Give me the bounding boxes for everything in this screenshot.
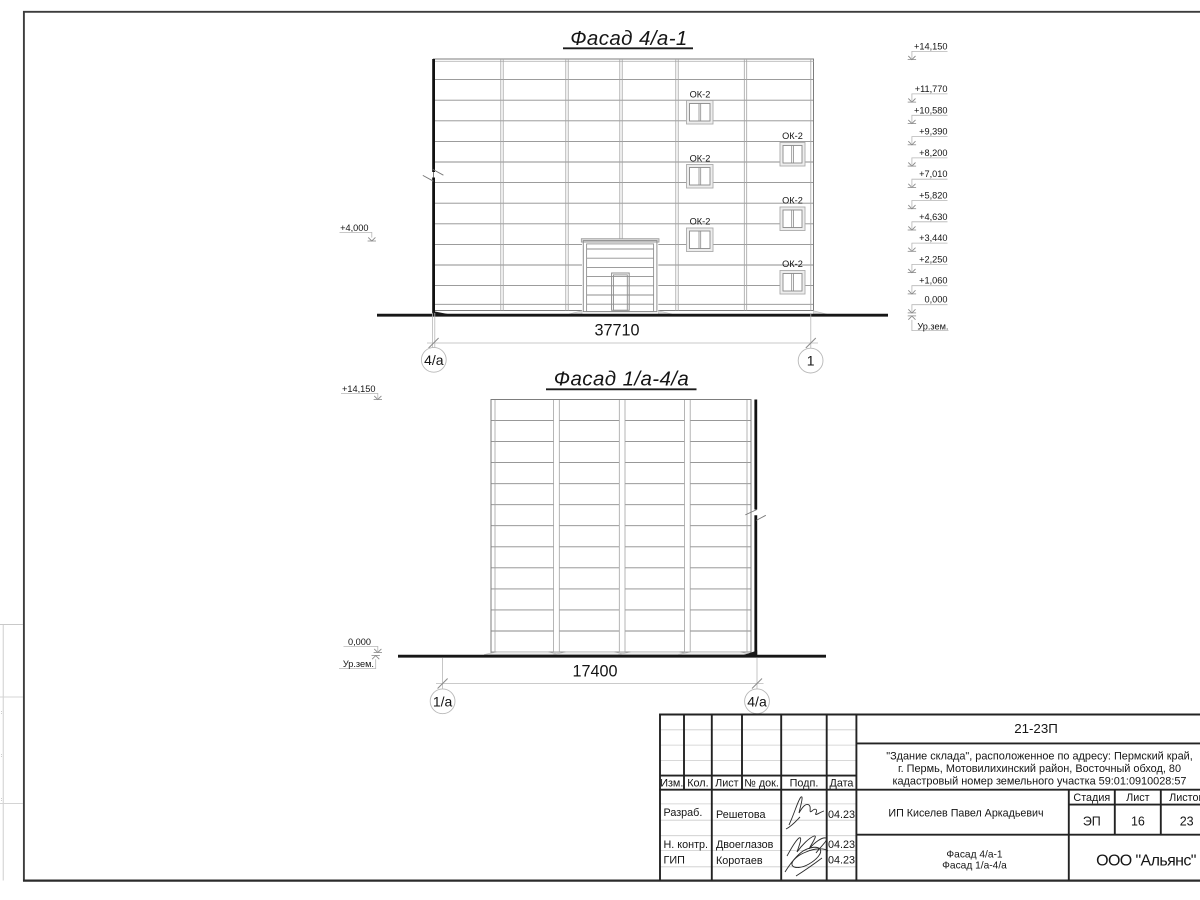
svg-text:Подп.: Подп. — [790, 778, 819, 790]
svg-text:+5,820: +5,820 — [919, 191, 947, 201]
svg-text:+10,580: +10,580 — [914, 105, 947, 115]
svg-text:ОК-2: ОК-2 — [690, 154, 711, 164]
svg-text:Разраб.: Разраб. — [664, 807, 703, 819]
svg-text:Фасад 1/а-4/а: Фасад 1/а-4/а — [554, 368, 689, 391]
svg-text:37710: 37710 — [594, 322, 639, 340]
svg-text:ГИП: ГИП — [664, 855, 685, 867]
svg-text:16: 16 — [1131, 815, 1145, 829]
svg-text:Решетова: Решетова — [716, 809, 766, 821]
svg-text:Изм.: Изм. — [660, 778, 683, 790]
svg-text::: : — [1, 710, 2, 715]
svg-text:4/а: 4/а — [747, 693, 767, 709]
svg-text:+4,630: +4,630 — [919, 212, 947, 222]
svg-text:+4,000: +4,000 — [340, 223, 368, 233]
svg-text:Н. контр.: Н. контр. — [664, 839, 709, 851]
svg-text:Кол.: Кол. — [687, 778, 708, 790]
svg-text:23: 23 — [1180, 815, 1194, 829]
svg-text:+1,060: +1,060 — [919, 276, 947, 286]
svg-text:+7,010: +7,010 — [919, 169, 947, 179]
svg-text:4/а: 4/а — [424, 352, 444, 368]
svg-text:ОК-2: ОК-2 — [690, 217, 711, 227]
svg-text:Фасад 1/а-4/а: Фасад 1/а-4/а — [942, 860, 1007, 871]
svg-text:17400: 17400 — [572, 663, 617, 681]
svg-text:0,000: 0,000 — [925, 295, 948, 305]
svg-text:Ур.зем.: Ур.зем. — [343, 659, 374, 669]
svg-text:21-23П: 21-23П — [1014, 721, 1058, 736]
svg-text:Ур.зем.: Ур.зем. — [917, 321, 948, 331]
svg-text:04.23: 04.23 — [828, 809, 855, 821]
svg-text:+9,390: +9,390 — [919, 127, 947, 137]
svg-text:ЭП: ЭП — [1083, 815, 1101, 829]
svg-text:ОК-2: ОК-2 — [690, 90, 711, 100]
svg-text:1: 1 — [807, 353, 815, 369]
svg-text:Стадия: Стадия — [1073, 792, 1110, 804]
svg-text:+2,250: +2,250 — [919, 254, 947, 264]
svg-text:+14,150: +14,150 — [914, 41, 947, 51]
svg-text:ОК-2: ОК-2 — [782, 131, 803, 141]
svg-text:Дата: Дата — [830, 778, 854, 790]
svg-text:ОК-2: ОК-2 — [782, 196, 803, 206]
svg-text:Двоеглазов: Двоеглазов — [716, 839, 774, 851]
svg-text:Фасад 4/а-1: Фасад 4/а-1 — [570, 27, 688, 50]
svg-text::: : — [1, 753, 2, 758]
svg-text:Лист: Лист — [1126, 792, 1150, 804]
svg-text:г. Пермь, Мотовилихинский райо: г. Пермь, Мотовилихинский район, Восточн… — [898, 763, 1181, 775]
svg-text:+3,440: +3,440 — [919, 233, 947, 243]
svg-text:"Здание склада", расположенное: "Здание склада", расположенное по адресу… — [886, 751, 1193, 763]
svg-text:+14,150: +14,150 — [342, 384, 375, 394]
svg-text:Листов: Листов — [1169, 792, 1200, 804]
svg-text:Фасад 4/а-1: Фасад 4/а-1 — [946, 849, 1002, 860]
svg-text:1/а: 1/а — [433, 693, 453, 709]
svg-text:ОК-2: ОК-2 — [782, 259, 803, 269]
svg-text:кадастровый номер земельного у: кадастровый номер земельного участка 59:… — [893, 776, 1187, 788]
svg-text:ООО "Альянс": ООО "Альянс" — [1096, 853, 1196, 870]
svg-text:+8,200: +8,200 — [919, 148, 947, 158]
svg-text:№ док.: № док. — [744, 778, 779, 790]
svg-text:0,000: 0,000 — [348, 637, 371, 647]
svg-text:04.23: 04.23 — [828, 855, 855, 867]
svg-text:Коротаев: Коротаев — [716, 855, 763, 867]
svg-text:Лист: Лист — [715, 778, 739, 790]
svg-text:04.23: 04.23 — [828, 839, 855, 851]
svg-text:ИП Киселев Павел Аркадьевич: ИП Киселев Павел Аркадьевич — [888, 807, 1043, 819]
svg-text::: : — [1, 797, 2, 802]
svg-text:+11,770: +11,770 — [915, 84, 948, 94]
